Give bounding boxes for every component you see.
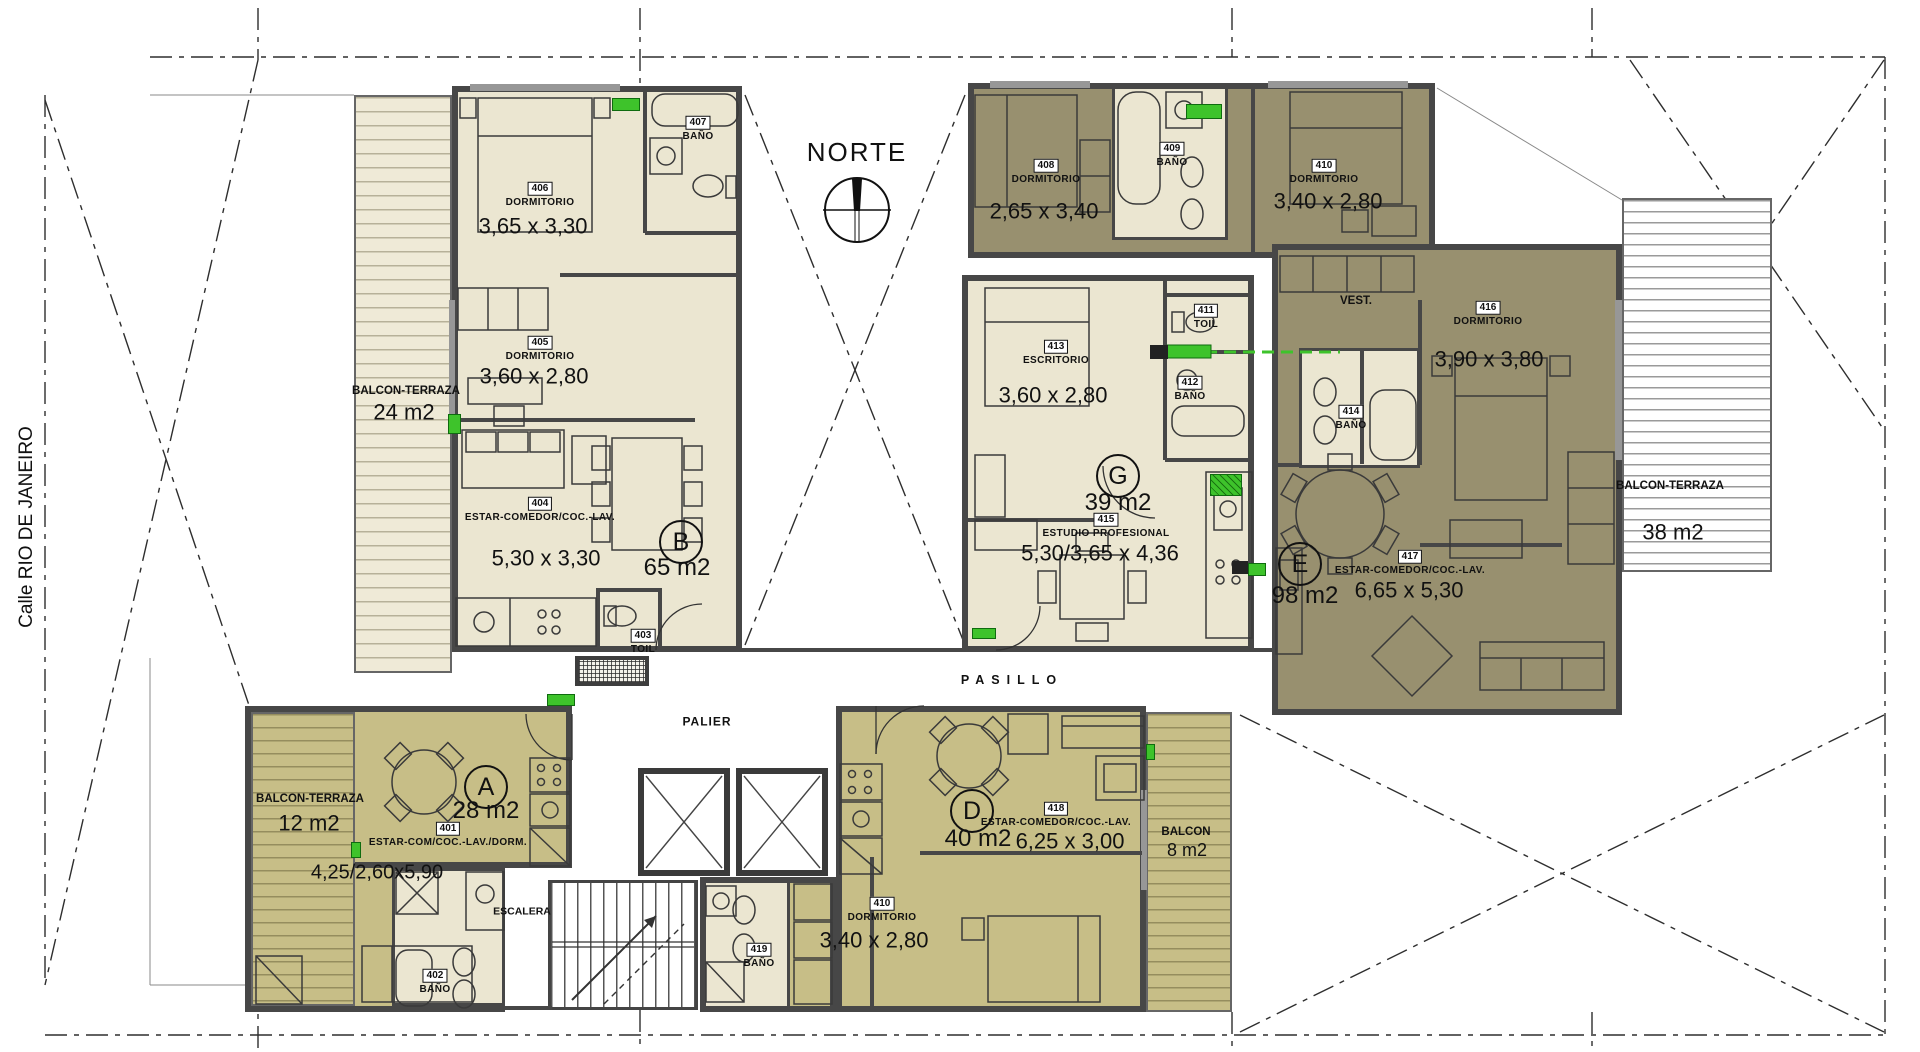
elevator-shaft-1 xyxy=(638,768,730,876)
balcony-e-terrace xyxy=(1622,198,1772,572)
floor-plan: NORTE Calle RIO DE JANEIRO PASILLO PALIE… xyxy=(0,0,1920,1052)
room-name-409: BAÑO xyxy=(1156,157,1187,170)
room-number-401: 401 xyxy=(436,822,461,836)
elevator-shaft-2 xyxy=(736,768,828,876)
landing-label: PALIER xyxy=(682,715,731,730)
room-dims-401: 4,25/2,60x5,90 xyxy=(311,861,443,886)
street-label: Calle RIO DE JANEIRO xyxy=(16,426,38,628)
room-name-414: BAÑO xyxy=(1335,420,1366,433)
vent-green-d-balcony xyxy=(1146,744,1155,760)
window-b-left xyxy=(449,300,455,420)
room-number-410-top: 410 xyxy=(1312,159,1337,173)
balcony-d-area: 8 m2 xyxy=(1167,839,1207,862)
stair-label: ESCALERA xyxy=(493,905,551,918)
room-number-416: 416 xyxy=(1476,301,1501,315)
room-number-407: 407 xyxy=(686,116,711,130)
room-label-402: 402 BAÑO xyxy=(419,964,450,997)
room-label-406: 406 DORMITORIO xyxy=(506,177,575,210)
room-dims-406: 3,65 x 3,30 xyxy=(479,212,588,240)
compass-label: NORTE xyxy=(807,136,908,169)
window-e-right xyxy=(1615,300,1622,460)
room-label-414: 414 BAÑO xyxy=(1335,400,1366,433)
balcony-d xyxy=(1146,712,1232,1012)
room-number-405: 405 xyxy=(528,336,553,350)
unit-area-e: 98 m2 xyxy=(1272,581,1339,611)
window-410-top xyxy=(1268,81,1408,88)
room-name-412: BAÑO xyxy=(1174,391,1205,404)
room-label-413: 413 ESCRITORIO xyxy=(1023,335,1089,368)
room-number-409: 409 xyxy=(1160,142,1185,156)
room-name-408: DORMITORIO xyxy=(1012,174,1081,187)
room-number-417: 417 xyxy=(1398,550,1423,564)
vest-label: VEST. xyxy=(1340,294,1372,308)
room-number-414: 414 xyxy=(1339,405,1364,419)
vent-green-b-top xyxy=(612,98,640,111)
room-label-405: 405 DORMITORIO xyxy=(506,331,575,364)
compass-icon xyxy=(823,178,891,242)
room-number-413: 413 xyxy=(1044,340,1069,354)
room-name-406: DORMITORIO xyxy=(506,197,575,210)
balcony-e-name: BALCON-TERRAZA xyxy=(1616,479,1724,493)
room-label-410-bottom: 410 DORMITORIO xyxy=(848,892,917,925)
room-dims-413: 3,60 x 2,80 xyxy=(999,381,1108,409)
window-408-top xyxy=(990,81,1090,88)
room-label-411: 411 TOIL xyxy=(1194,299,1218,332)
room-number-403: 403 xyxy=(631,629,656,643)
balcony-a-terrace xyxy=(251,712,355,1006)
room-dims-418: 6,25 x 3,00 xyxy=(1016,827,1125,855)
unit-letter-e: E xyxy=(1278,542,1322,586)
unit-area-b: 65 m2 xyxy=(644,553,711,583)
room-name-419: BAÑO xyxy=(743,958,774,971)
room-name-402: BAÑO xyxy=(419,984,450,997)
room-dims-417: 6,65 x 5,30 xyxy=(1355,576,1464,604)
vent-green-corridor xyxy=(972,628,996,639)
room-name-410-top: DORMITORIO xyxy=(1290,174,1359,187)
balcony-a-name: BALCON-TERRAZA xyxy=(256,792,364,806)
room-number-415: 415 xyxy=(1094,513,1119,527)
room-label-415: 415 ESTUDIO PROFESIONAL xyxy=(1042,508,1169,541)
room-name-403: TOIL xyxy=(631,644,656,657)
room-label-410-top: 410 DORMITORIO xyxy=(1290,154,1359,187)
vent-green-e-living xyxy=(1248,563,1266,576)
balcony-b-area: 24 m2 xyxy=(373,398,434,426)
room-number-410-bottom: 410 xyxy=(870,897,895,911)
entry-mat xyxy=(575,656,649,686)
corridor-label: PASILLO xyxy=(961,673,1063,689)
room-dims-410-top: 3,40 x 2,80 xyxy=(1274,187,1383,215)
room-dims-408: 2,65 x 3,40 xyxy=(990,197,1099,225)
room-label-418: 418 ESTAR-COMEDOR/COC.-LAV. xyxy=(981,797,1131,830)
room-number-402: 402 xyxy=(423,969,448,983)
window-d-right xyxy=(1141,790,1147,890)
room-label-419: 419 BAÑO xyxy=(743,938,774,971)
room-label-409: 409 BAÑO xyxy=(1156,137,1187,170)
room-name-411: TOIL xyxy=(1194,319,1218,332)
room-name-401: ESTAR-COM/COC.-LAV./DORM. xyxy=(369,837,527,850)
room-name-407: BAÑO xyxy=(682,131,713,144)
room-name-404: ESTAR-COMEDOR/COC.-LAV. xyxy=(465,512,615,525)
vent-green-a-balcony xyxy=(351,842,361,858)
room-dims-415: 5,30/3,65 x 4,36 xyxy=(1021,539,1179,567)
vent-green-b-balcony xyxy=(448,414,461,434)
room-label-407: 407 BAÑO xyxy=(682,111,713,144)
staircase xyxy=(548,880,698,1010)
vent-green-a-entry xyxy=(547,694,575,706)
ac-box-e xyxy=(1232,561,1248,574)
room-dims-410-bottom: 3,40 x 2,80 xyxy=(820,926,929,954)
balcony-d-name: BALCON xyxy=(1161,825,1210,839)
planter-green-g xyxy=(1210,474,1242,496)
unit-d-footprint xyxy=(836,706,1146,1012)
room-dims-416: 3,90 x 3,80 xyxy=(1435,345,1544,373)
room-number-412: 412 xyxy=(1178,376,1203,390)
room-label-416: 416 DORMITORIO xyxy=(1454,296,1523,329)
vent-green-e-top xyxy=(1186,104,1222,119)
ac-box-g xyxy=(1150,345,1168,359)
window-b-top xyxy=(470,84,620,91)
balcony-e-area: 38 m2 xyxy=(1642,518,1703,546)
room-name-416: DORMITORIO xyxy=(1454,316,1523,329)
balcony-b-name: BALCON-TERRAZA xyxy=(352,384,460,398)
room-label-403: 403 TOIL xyxy=(631,624,656,657)
room-dims-404: 5,30 x 3,30 xyxy=(492,544,601,572)
room-name-413: ESCRITORIO xyxy=(1023,355,1089,368)
room-number-406: 406 xyxy=(528,182,553,196)
room-label-408: 408 DORMITORIO xyxy=(1012,154,1081,187)
room-number-404: 404 xyxy=(528,497,553,511)
room-label-412: 412 BAÑO xyxy=(1174,371,1205,404)
room-number-419: 419 xyxy=(747,943,772,957)
room-label-417: 417 ESTAR-COMEDOR/COC.-LAV. xyxy=(1335,545,1485,578)
room-label-404: 404 ESTAR-COMEDOR/COC.-LAV. xyxy=(465,492,615,525)
unit-e-living-wing xyxy=(1272,244,1622,715)
balcony-a-area: 12 m2 xyxy=(278,809,339,837)
room-label-401: 401 ESTAR-COM/COC.-LAV./DORM. xyxy=(369,817,527,850)
room-number-418: 418 xyxy=(1044,802,1069,816)
room-name-410-bottom: DORMITORIO xyxy=(848,912,917,925)
room-number-411: 411 xyxy=(1194,304,1218,318)
room-number-408: 408 xyxy=(1034,159,1059,173)
room-dims-405: 3,60 x 2,80 xyxy=(480,362,589,390)
